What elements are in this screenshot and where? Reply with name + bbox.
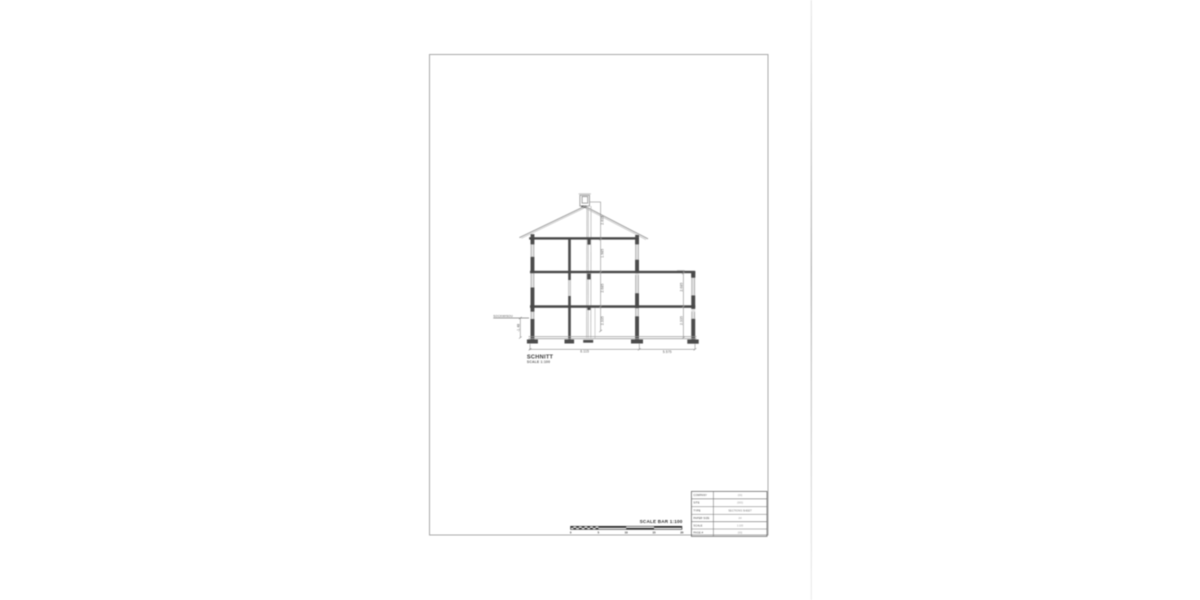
svg-text:2.685: 2.685	[601, 284, 605, 293]
svg-text:SCALE BAR 1:100: SCALE BAR 1:100	[640, 519, 683, 524]
svg-text:PAPER SIZE: PAPER SIZE	[693, 516, 709, 520]
svg-text:(00): (00)	[738, 494, 743, 497]
svg-text:6.115: 6.115	[580, 350, 589, 354]
svg-text:2.685: 2.685	[679, 283, 683, 292]
svg-text:15: 15	[652, 531, 656, 535]
svg-text:20: 20	[680, 531, 684, 535]
svg-text:SECTIONS SHEET: SECTIONS SHEET	[728, 509, 752, 513]
svg-text:SCALE 1:100: SCALE 1:100	[527, 360, 550, 364]
svg-text:(00): (00)	[738, 532, 743, 535]
svg-text:PAGE #: PAGE #	[693, 531, 703, 535]
svg-text:(000): (000)	[737, 502, 743, 505]
svg-text:SOCKWISOU: SOCKWISOU	[493, 314, 513, 318]
svg-text:-1.48: -1.48	[516, 324, 520, 332]
svg-text:1.985: 1.985	[601, 249, 605, 258]
svg-text:1:100: 1:100	[737, 524, 744, 527]
svg-text:SITE: SITE	[693, 501, 699, 505]
svg-text:2.335: 2.335	[601, 316, 605, 325]
svg-text:TYPE: TYPE	[693, 509, 700, 513]
svg-text:2.635: 2.635	[601, 216, 605, 225]
svg-text:5.575: 5.575	[663, 350, 672, 354]
svg-text:2.335: 2.335	[679, 316, 683, 325]
svg-text:COMPANY: COMPANY	[693, 493, 707, 497]
svg-text:10: 10	[625, 531, 629, 535]
svg-text:SCALE: SCALE	[693, 523, 702, 527]
